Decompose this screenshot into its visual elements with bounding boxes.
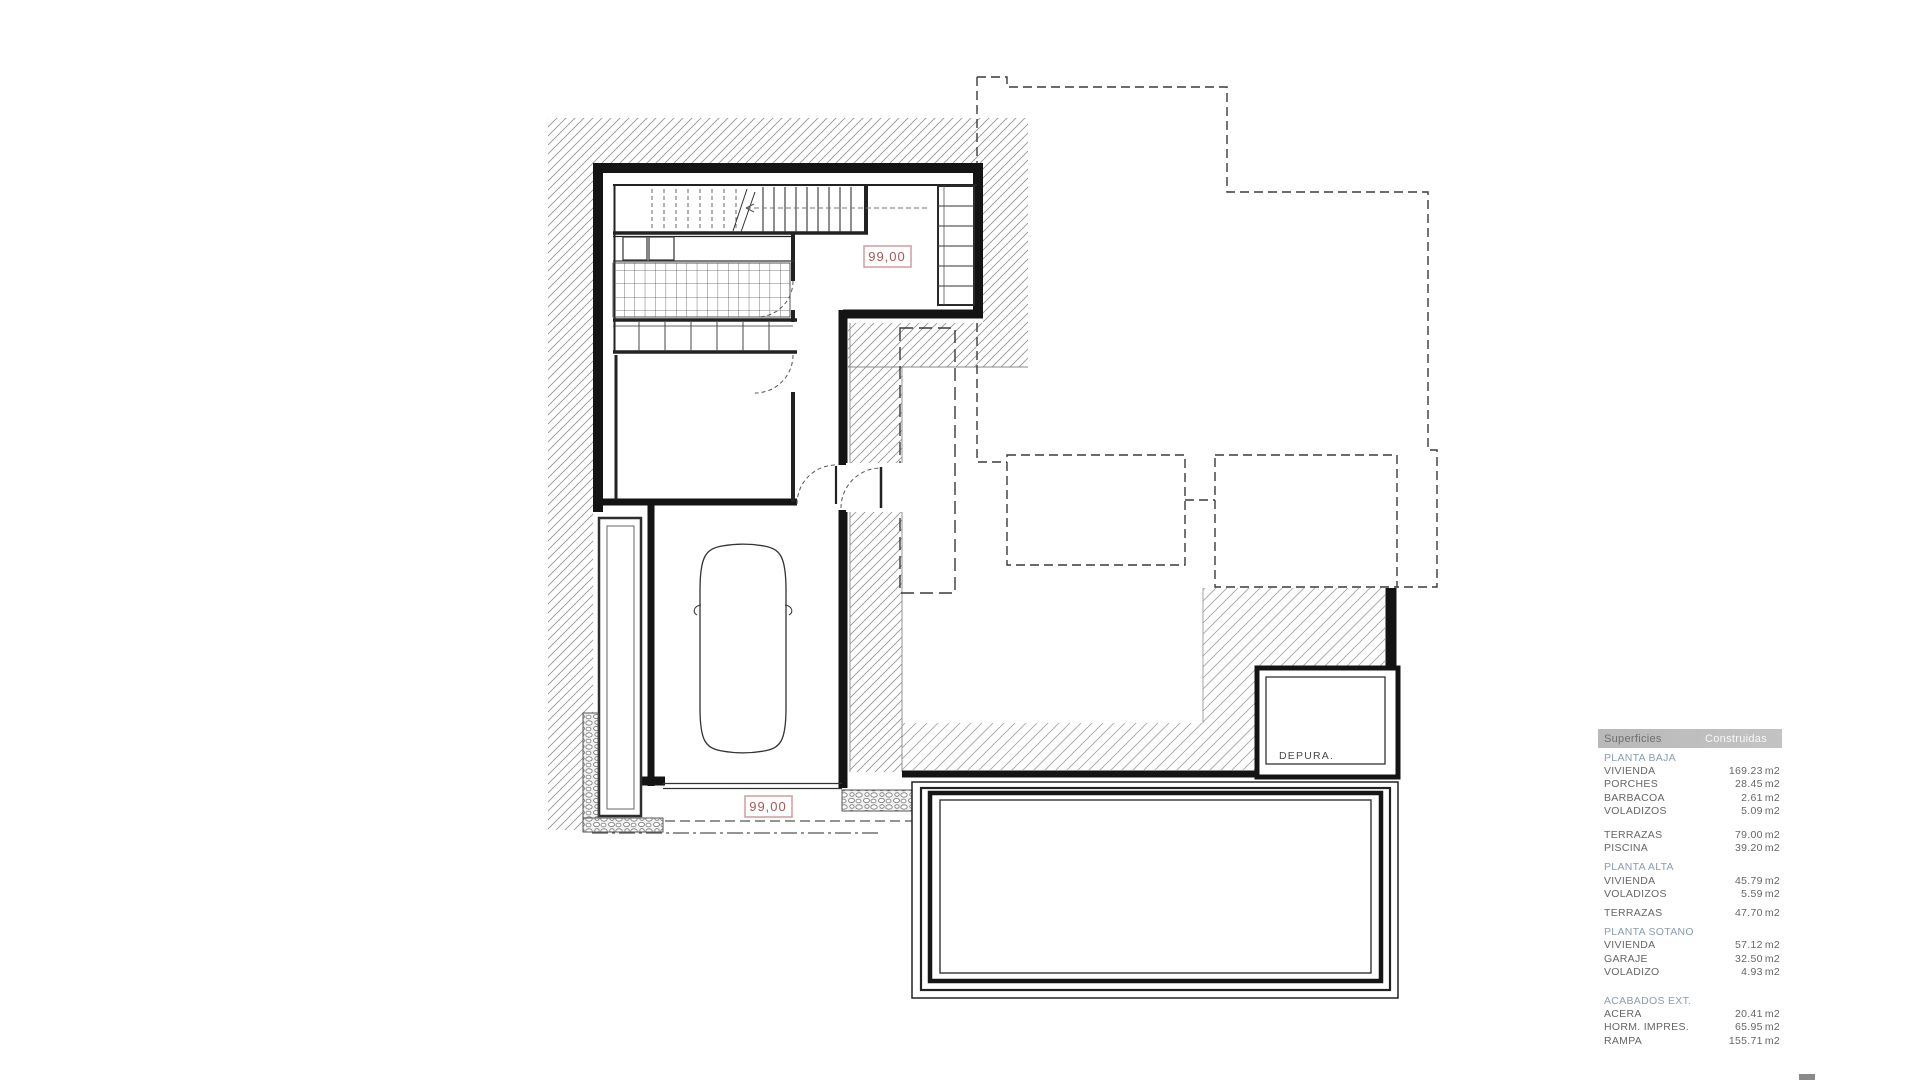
row-label: BARBACOA xyxy=(1604,792,1665,805)
row-label: VOLADIZOS xyxy=(1604,805,1667,818)
table-row: BARBACOA2.61m2 xyxy=(1604,792,1780,805)
surfaces-table-rows: PLANTA BAJAVIVIENDA169.23m2PORCHES28.45m… xyxy=(1598,748,1782,1048)
row-unit: m2 xyxy=(1765,875,1780,887)
depura-label: DEPURA. xyxy=(1279,750,1334,762)
row-unit: m2 xyxy=(1765,842,1780,854)
row-label: PISCINA xyxy=(1604,842,1648,855)
depura-room: DEPURA. xyxy=(1257,668,1398,777)
table-row: VOLADIZOS5.59m2 xyxy=(1604,888,1780,901)
kitchen xyxy=(613,237,795,317)
surfaces-table: Superficies Construidas PLANTA BAJAVIVIE… xyxy=(1598,729,1782,1048)
row-value: 2.61m2 xyxy=(1741,792,1780,805)
row-unit: m2 xyxy=(1765,1035,1780,1047)
row-unit: m2 xyxy=(1765,939,1780,951)
table-row: PISCINA39.20m2 xyxy=(1604,842,1780,855)
row-label: HORM. IMPRES. xyxy=(1604,1021,1689,1034)
rooflight-dashed-rect-2 xyxy=(1215,455,1397,587)
row-label: PLANTA SOTANO xyxy=(1604,926,1694,939)
row-label: VIVIENDA xyxy=(1604,765,1655,778)
row-value: 39.20m2 xyxy=(1735,842,1780,855)
floor-plan-canvas: DEPURA. 99,00 99,00 Superficies Construi… xyxy=(0,0,1920,1080)
rooflight-dashed-rect-1 xyxy=(1007,455,1185,565)
row-value: 79.00m2 xyxy=(1735,829,1780,842)
row-label: TERRAZAS xyxy=(1604,829,1662,842)
row-value: 20.41m2 xyxy=(1735,1008,1780,1021)
row-label: VOLADIZO xyxy=(1604,966,1660,979)
row-unit: m2 xyxy=(1765,1008,1780,1020)
table-row: TERRAZAS79.00m2 xyxy=(1604,829,1780,842)
surfaces-header-col1: Superficies xyxy=(1604,733,1662,745)
row-unit: m2 xyxy=(1765,805,1780,817)
kitchen-appliance-2 xyxy=(649,237,674,260)
pool-icon xyxy=(912,782,1398,998)
area-label-bottom: 99,00 xyxy=(745,796,792,817)
row-unit: m2 xyxy=(1765,765,1780,777)
row-label: VIVIENDA xyxy=(1604,939,1655,952)
table-spacer xyxy=(1604,979,1780,995)
table-section-row: PLANTA BAJA xyxy=(1604,752,1780,765)
wardrobe-column xyxy=(938,186,974,305)
row-label: VIVIENDA xyxy=(1604,875,1655,888)
row-unit: m2 xyxy=(1765,778,1780,790)
table-spacer xyxy=(1604,818,1780,829)
table-row: RAMPA155.71m2 xyxy=(1604,1035,1780,1048)
table-row: VIVIENDA45.79m2 xyxy=(1604,875,1780,888)
row-value: 47.70m2 xyxy=(1735,907,1780,920)
closet-row xyxy=(613,322,793,352)
row-value: 5.09m2 xyxy=(1741,805,1780,818)
page-corner-mark xyxy=(1799,1074,1815,1080)
row-label: VOLADIZOS xyxy=(1604,888,1667,901)
table-section-row: PLANTA SOTANO xyxy=(1604,926,1780,939)
row-unit: m2 xyxy=(1765,907,1780,919)
upper-wing-dashed-rect xyxy=(900,328,955,593)
row-unit: m2 xyxy=(1765,1021,1780,1033)
svg-text:99,00: 99,00 xyxy=(868,249,906,264)
row-value: 4.93m2 xyxy=(1741,966,1780,979)
row-label: RAMPA xyxy=(1604,1035,1642,1048)
row-label: PLANTA BAJA xyxy=(1604,752,1676,765)
door-arc-icon xyxy=(797,465,836,504)
row-value: 32.50m2 xyxy=(1735,953,1780,966)
car-icon xyxy=(700,544,786,753)
row-label: ACERA xyxy=(1604,1008,1642,1021)
row-label: ACABADOS EXT. xyxy=(1604,995,1691,1008)
row-value: 169.23m2 xyxy=(1729,765,1780,778)
table-row: TERRAZAS47.70m2 xyxy=(1604,907,1780,920)
kitchen-appliance-1 xyxy=(623,237,647,260)
row-label: TERRAZAS xyxy=(1604,907,1662,920)
table-row: VIVIENDA169.23m2 xyxy=(1604,765,1780,778)
garage xyxy=(663,544,842,788)
kitchen-tile-grid xyxy=(613,263,790,317)
row-label: PLANTA ALTA xyxy=(1604,861,1674,874)
svg-text:99,00: 99,00 xyxy=(749,799,787,814)
table-row: VIVIENDA57.12m2 xyxy=(1604,939,1780,952)
row-unit: m2 xyxy=(1765,953,1780,965)
row-unit: m2 xyxy=(1765,888,1780,900)
surfaces-header-col2: Construidas xyxy=(1705,733,1767,745)
row-label: PORCHES xyxy=(1604,778,1658,791)
row-value: 45.79m2 xyxy=(1735,875,1780,888)
row-unit: m2 xyxy=(1765,829,1780,841)
porch-planter-strip xyxy=(599,518,641,816)
table-row: PORCHES28.45m2 xyxy=(1604,778,1780,791)
row-value: 57.12m2 xyxy=(1735,939,1780,952)
row-value: 5.59m2 xyxy=(1741,888,1780,901)
table-row: VOLADIZO4.93m2 xyxy=(1604,966,1780,979)
table-row: VOLADIZOS5.09m2 xyxy=(1604,805,1780,818)
table-section-row: PLANTA ALTA xyxy=(1604,861,1780,874)
row-unit: m2 xyxy=(1765,966,1780,978)
surfaces-table-header: Superficies Construidas xyxy=(1598,729,1782,748)
row-value: 155.71m2 xyxy=(1729,1035,1780,1048)
row-unit: m2 xyxy=(1765,792,1780,804)
staircase-left xyxy=(652,189,755,232)
table-section-row: ACABADOS EXT. xyxy=(1604,995,1780,1008)
row-value: 65.95m2 xyxy=(1735,1021,1780,1034)
row-value: 28.45m2 xyxy=(1735,778,1780,791)
table-row: HORM. IMPRES.65.95m2 xyxy=(1604,1021,1780,1034)
table-row: ACERA20.41m2 xyxy=(1604,1008,1780,1021)
table-row: GARAJE32.50m2 xyxy=(1604,953,1780,966)
area-label-top: 99,00 xyxy=(864,246,911,267)
door-arc-icon xyxy=(755,355,793,393)
staircase-right xyxy=(746,187,928,232)
row-label: GARAJE xyxy=(1604,953,1648,966)
